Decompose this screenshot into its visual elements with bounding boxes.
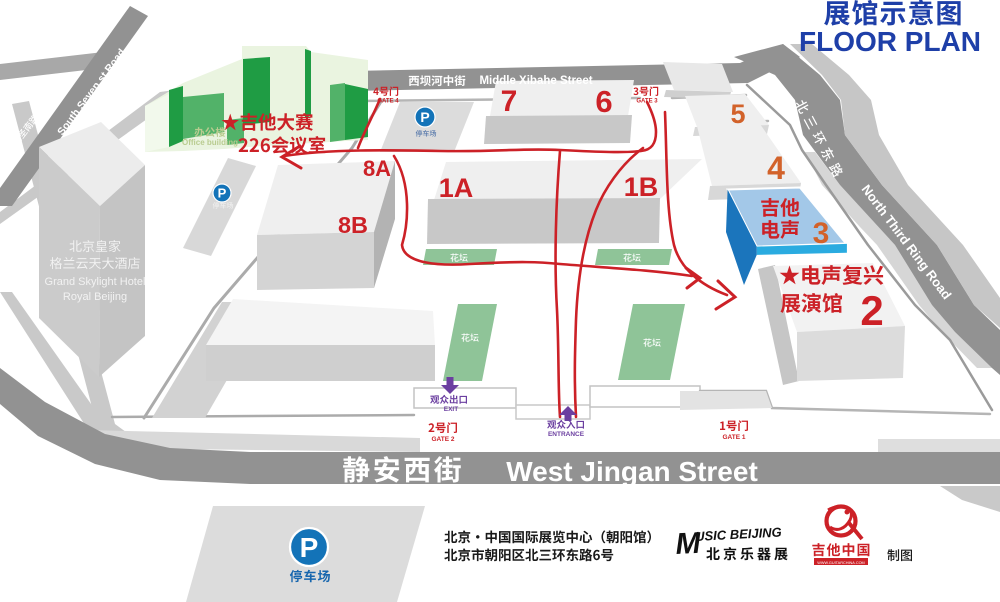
svg-text:GATE 2: GATE 2: [432, 436, 455, 443]
svg-text:7: 7: [501, 85, 518, 118]
svg-text:Office building: Office building: [182, 138, 238, 147]
svg-text:8A: 8A: [363, 156, 391, 181]
svg-text:1B: 1B: [624, 172, 659, 202]
svg-text:2: 2: [860, 287, 883, 334]
svg-text:1A: 1A: [439, 173, 474, 203]
svg-text:WWW.GUITARCHINA.COM: WWW.GUITARCHINA.COM: [817, 561, 864, 565]
svg-text:4: 4: [767, 150, 785, 186]
svg-text:P: P: [420, 109, 429, 125]
svg-text:West Jingan Street: West Jingan Street: [506, 456, 758, 487]
svg-text:8B: 8B: [338, 212, 368, 238]
svg-text:P: P: [218, 186, 227, 201]
svg-text:ENTRANCE: ENTRANCE: [548, 431, 585, 438]
svg-text:Grand Skylight Hotel: Grand Skylight Hotel: [45, 276, 146, 288]
svg-text:Royal Beijing: Royal Beijing: [63, 291, 127, 303]
svg-text:6: 6: [595, 84, 612, 119]
svg-text:3: 3: [813, 217, 830, 250]
svg-text:FLOOR PLAN: FLOOR PLAN: [799, 26, 981, 57]
svg-text:Middle Xibahe Street: Middle Xibahe Street: [479, 75, 592, 87]
svg-text:EXIT: EXIT: [444, 406, 458, 413]
svg-text:5: 5: [730, 99, 745, 129]
svg-text:P: P: [300, 532, 319, 563]
svg-text:GATE 1: GATE 1: [723, 434, 746, 441]
svg-text:GATE 4: GATE 4: [377, 99, 399, 105]
svg-text:GATE 3: GATE 3: [636, 99, 658, 105]
